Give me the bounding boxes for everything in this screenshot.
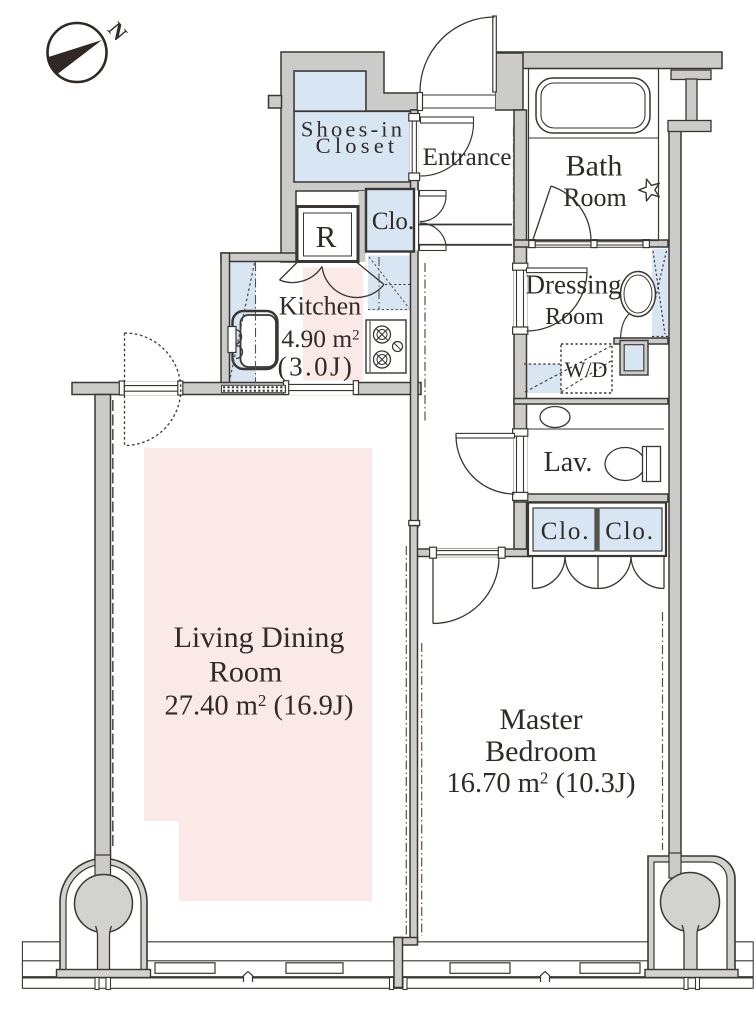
svg-text:N: N — [103, 17, 132, 45]
svg-text:4.90 m2: 4.90 m2 — [281, 324, 359, 353]
svg-text:Clo.: Clo. — [372, 208, 414, 235]
svg-text:R: R — [316, 219, 337, 254]
svg-text:Bath: Bath — [566, 150, 623, 183]
svg-text:Bedroom: Bedroom — [485, 735, 597, 768]
svg-text:Room: Room — [563, 183, 627, 212]
svg-text:Lav.: Lav. — [544, 447, 593, 478]
svg-text:Master: Master — [499, 703, 582, 736]
svg-text:Clo.: Clo. — [605, 518, 655, 545]
svg-text:Living Dining: Living Dining — [174, 621, 345, 654]
svg-text:Entrance: Entrance — [423, 144, 512, 171]
svg-text:Closet: Closet — [316, 133, 399, 158]
svg-text:W/D: W/D — [565, 357, 608, 382]
svg-text:Clo.: Clo. — [541, 518, 591, 545]
svg-text:16.70 m2 (10.3J): 16.70 m2 (10.3J) — [447, 768, 636, 799]
svg-text:Dressing: Dressing — [526, 270, 622, 300]
svg-text:Room: Room — [545, 304, 604, 330]
svg-text:Kitchen: Kitchen — [279, 292, 361, 321]
svg-text:(3.0J): (3.0J) — [278, 352, 355, 382]
svg-text:Room: Room — [209, 656, 282, 689]
